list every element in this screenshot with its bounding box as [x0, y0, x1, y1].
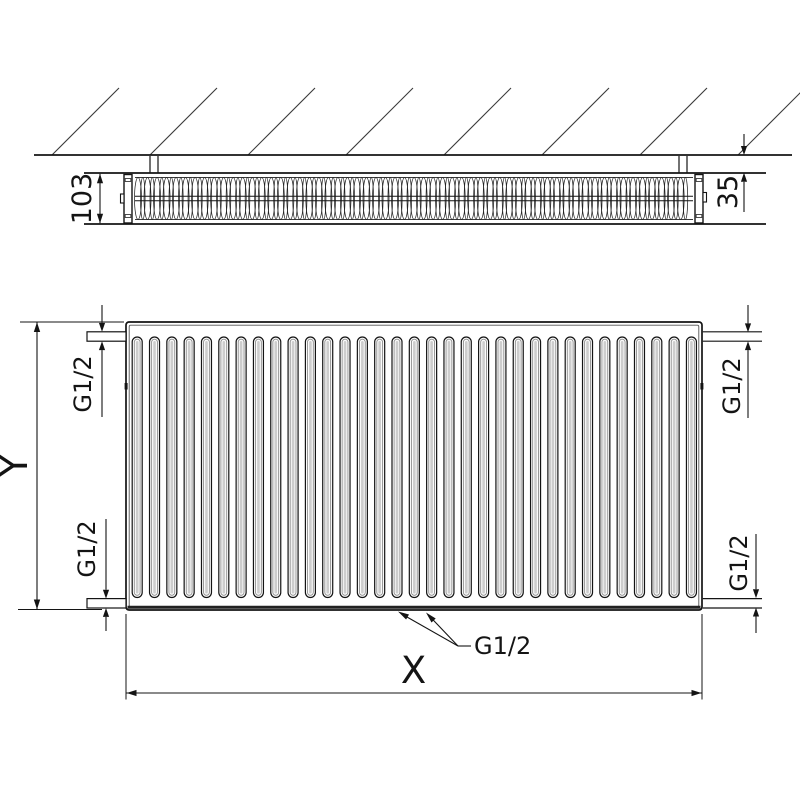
height-label: Y — [0, 453, 36, 478]
depth-label: 103 — [67, 173, 98, 225]
groove-center — [430, 341, 433, 594]
dimension-depth: 103 — [67, 173, 103, 225]
end-cap-right — [695, 175, 707, 224]
groove-center — [153, 341, 156, 594]
groove-center — [292, 341, 295, 594]
right-edge-tab — [700, 383, 703, 390]
groove-center — [274, 341, 277, 594]
groove-center — [136, 341, 139, 594]
connection-stub-bottom-left — [87, 599, 126, 608]
groove-center — [482, 341, 485, 594]
groove-center — [344, 341, 347, 594]
groove-center — [500, 341, 503, 594]
groove-center — [205, 341, 208, 594]
hatch-line — [52, 88, 119, 155]
wall-hatch — [52, 88, 800, 155]
groove-center — [413, 341, 416, 594]
groove-center — [223, 341, 226, 594]
drawing-canvas: 103 35 — [0, 0, 800, 800]
connection-stub-bottom-right — [703, 599, 762, 608]
groove-center — [673, 341, 676, 594]
radiator-technical-drawing: 103 35 — [0, 0, 800, 800]
dimension-thread-bottom-left: G1/2 — [73, 519, 109, 631]
wall-clearance-label: 35 — [713, 175, 744, 209]
thread-bottom-center-label: G1/2 — [474, 632, 531, 660]
hatch-line — [640, 88, 707, 155]
groove-center — [309, 341, 312, 594]
thread-top-right-label: G1/2 — [718, 357, 746, 414]
groove-center — [465, 341, 468, 594]
groove-center — [656, 341, 659, 594]
groove-center — [326, 341, 329, 594]
groove-center — [569, 341, 572, 594]
groove-center — [586, 341, 589, 594]
top-view-radiator-body — [84, 173, 766, 224]
groove-center — [378, 341, 381, 594]
groove-center — [517, 341, 520, 594]
groove-center — [257, 341, 260, 594]
groove-center — [396, 341, 399, 594]
connection-stub-top-left — [87, 332, 126, 341]
hatch-line — [444, 88, 511, 155]
top-view: 103 35 — [34, 88, 800, 224]
hatch-line — [738, 88, 800, 155]
groove-center — [171, 341, 174, 594]
dimension-thread-bottom-right: G1/2 — [725, 534, 759, 633]
groove-center — [448, 341, 451, 594]
groove-center — [621, 341, 624, 594]
hatch-line — [248, 88, 315, 155]
groove-center — [690, 341, 693, 594]
connection-stub-top-right — [703, 332, 762, 341]
groove-center — [638, 341, 641, 594]
groove-center — [604, 341, 607, 594]
groove-center — [552, 341, 555, 594]
thread-bottom-right-label: G1/2 — [725, 534, 753, 591]
wall-brackets — [150, 156, 687, 173]
thread-bottom-left-label: G1/2 — [73, 520, 101, 577]
hatch-line — [150, 88, 217, 155]
groove-center — [361, 341, 364, 594]
groove-center — [534, 341, 537, 594]
hatch-line — [542, 88, 609, 155]
front-view: Y X G1/2 G1/2 — [0, 305, 762, 700]
convector-fins — [135, 178, 688, 220]
hatch-line — [346, 88, 413, 155]
groove-center — [188, 341, 191, 594]
dimension-width: X — [126, 614, 702, 700]
thread-top-left-label: G1/2 — [69, 355, 97, 412]
end-cap-left — [121, 175, 133, 224]
dimension-height: Y — [0, 322, 124, 610]
left-edge-tab — [125, 383, 128, 390]
dimension-thread-top-right: G1/2 — [718, 305, 751, 418]
groove-center — [240, 341, 243, 594]
width-label: X — [401, 649, 426, 692]
